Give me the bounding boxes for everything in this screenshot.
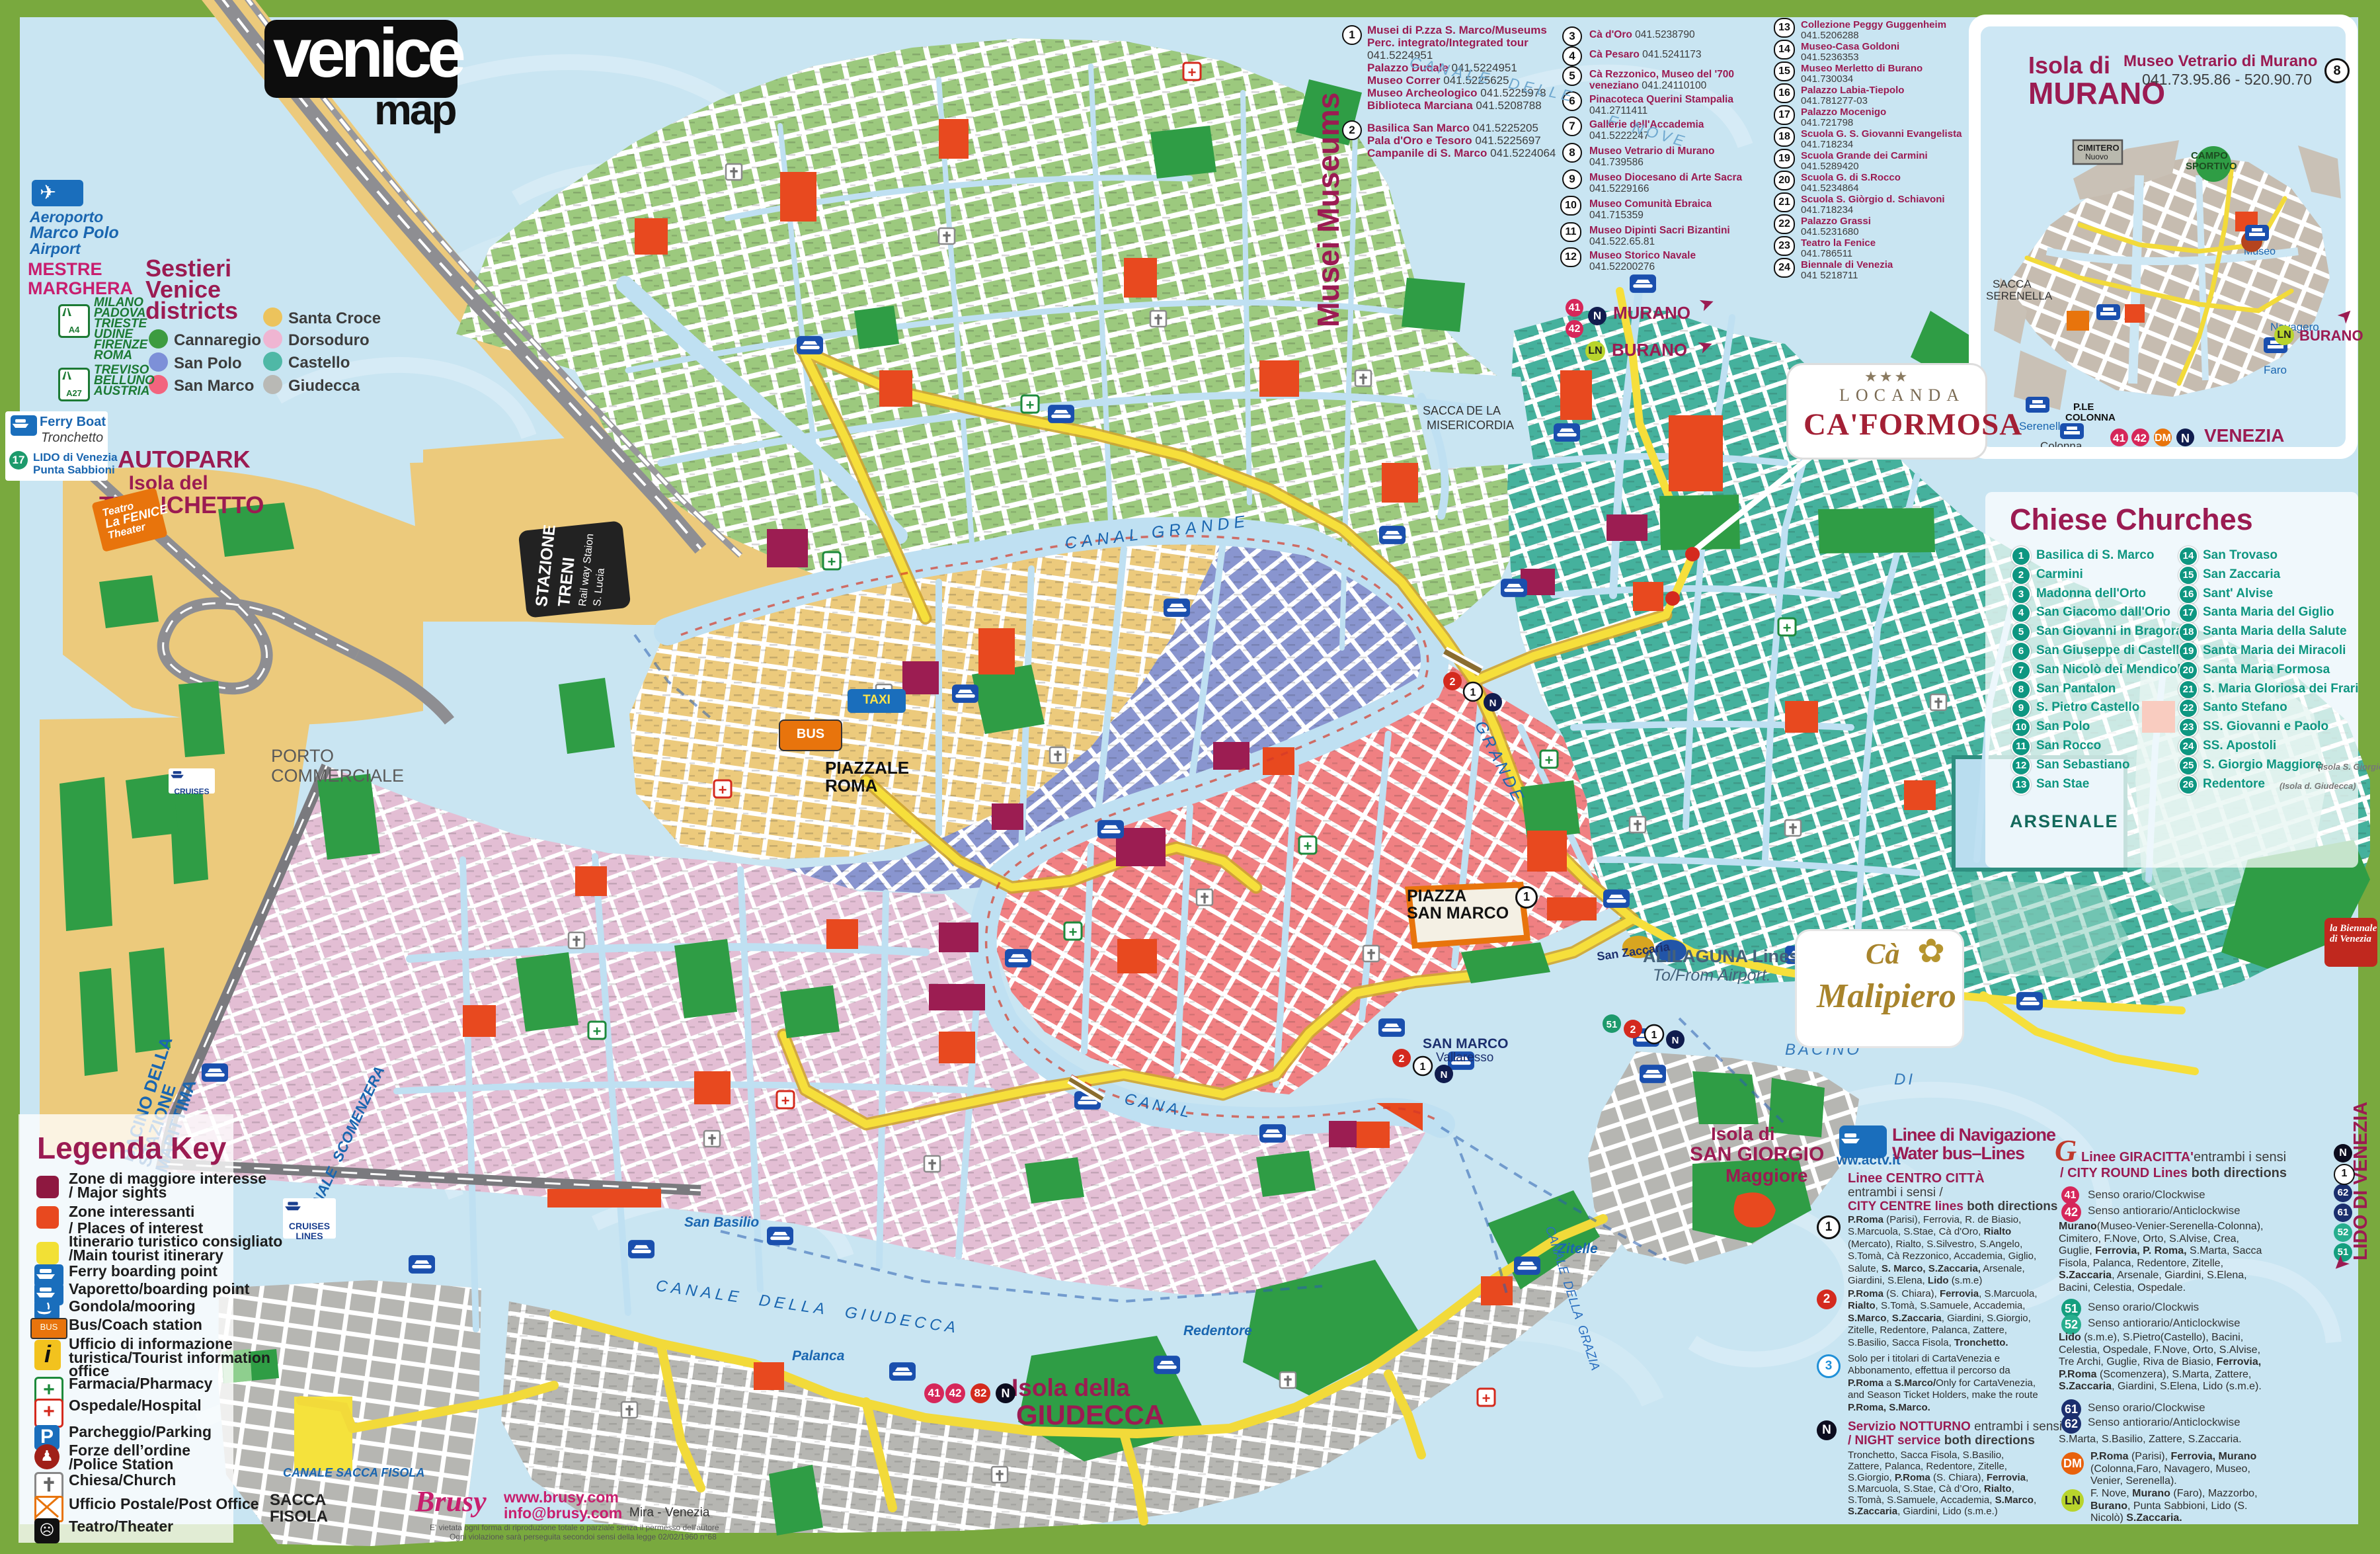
svg-text:SERENELLA: SERENELLA	[1986, 290, 2053, 302]
svg-text:✝: ✝	[1282, 1374, 1294, 1389]
svg-text:✝: ✝	[1152, 313, 1164, 328]
svg-text:+: +	[1482, 1390, 1491, 1407]
svg-text:N: N	[1441, 1069, 1448, 1081]
svg-text:SACCA: SACCA	[1993, 278, 2032, 290]
svg-text:CIMITERO: CIMITERO	[2077, 143, 2120, 153]
svg-text:+: +	[1026, 397, 1035, 413]
svg-text:Colonna: Colonna	[2040, 440, 2082, 447]
svg-text:Serenella: Serenella	[2019, 420, 2067, 432]
svg-text:P.LE: P.LE	[2073, 401, 2094, 413]
svg-text:✝: ✝	[706, 1133, 718, 1148]
svg-text:1: 1	[1420, 1061, 1426, 1073]
svg-text:✝: ✝	[728, 166, 740, 181]
svg-text:CAMPO: CAMPO	[2191, 150, 2228, 161]
svg-text:+: +	[593, 1023, 602, 1040]
svg-text:51: 51	[1606, 1019, 1618, 1030]
svg-text:✝: ✝	[1787, 822, 1799, 837]
svg-text:✝: ✝	[571, 934, 582, 950]
svg-text:+: +	[1304, 838, 1312, 854]
svg-text:+: +	[719, 782, 727, 798]
svg-text:✝: ✝	[994, 1469, 1006, 1484]
svg-text:✝: ✝	[1199, 891, 1210, 907]
svg-text:+: +	[1188, 64, 1197, 81]
svg-text:✝: ✝	[623, 1404, 635, 1419]
svg-text:N: N	[1489, 698, 1497, 709]
svg-text:N: N	[1672, 1035, 1679, 1046]
svg-text:Faro: Faro	[2264, 364, 2287, 376]
svg-text:2: 2	[1450, 676, 1456, 688]
svg-text:✝: ✝	[1357, 372, 1369, 388]
svg-text:✝: ✝	[1632, 819, 1644, 834]
svg-text:+: +	[1545, 752, 1554, 768]
svg-text:✝: ✝	[1932, 696, 1944, 712]
svg-text:+: +	[1783, 620, 1792, 636]
svg-text:2: 2	[1630, 1024, 1636, 1036]
svg-text:1: 1	[1470, 687, 1476, 698]
svg-text:✝: ✝	[941, 230, 953, 245]
svg-text:Nuovo: Nuovo	[2085, 152, 2108, 161]
svg-text:+: +	[781, 1092, 790, 1109]
svg-text:SPORTIVO: SPORTIVO	[2186, 161, 2237, 172]
svg-text:COLONNA: COLONNA	[2065, 412, 2116, 423]
svg-text:✝: ✝	[926, 1158, 938, 1173]
svg-text:✝: ✝	[1365, 948, 1377, 963]
svg-text:2: 2	[1399, 1053, 1405, 1065]
svg-text:+: +	[1069, 924, 1078, 940]
svg-text:+: +	[828, 553, 836, 570]
svg-text:✝: ✝	[1052, 749, 1064, 764]
svg-text:1: 1	[1651, 1030, 1657, 1041]
